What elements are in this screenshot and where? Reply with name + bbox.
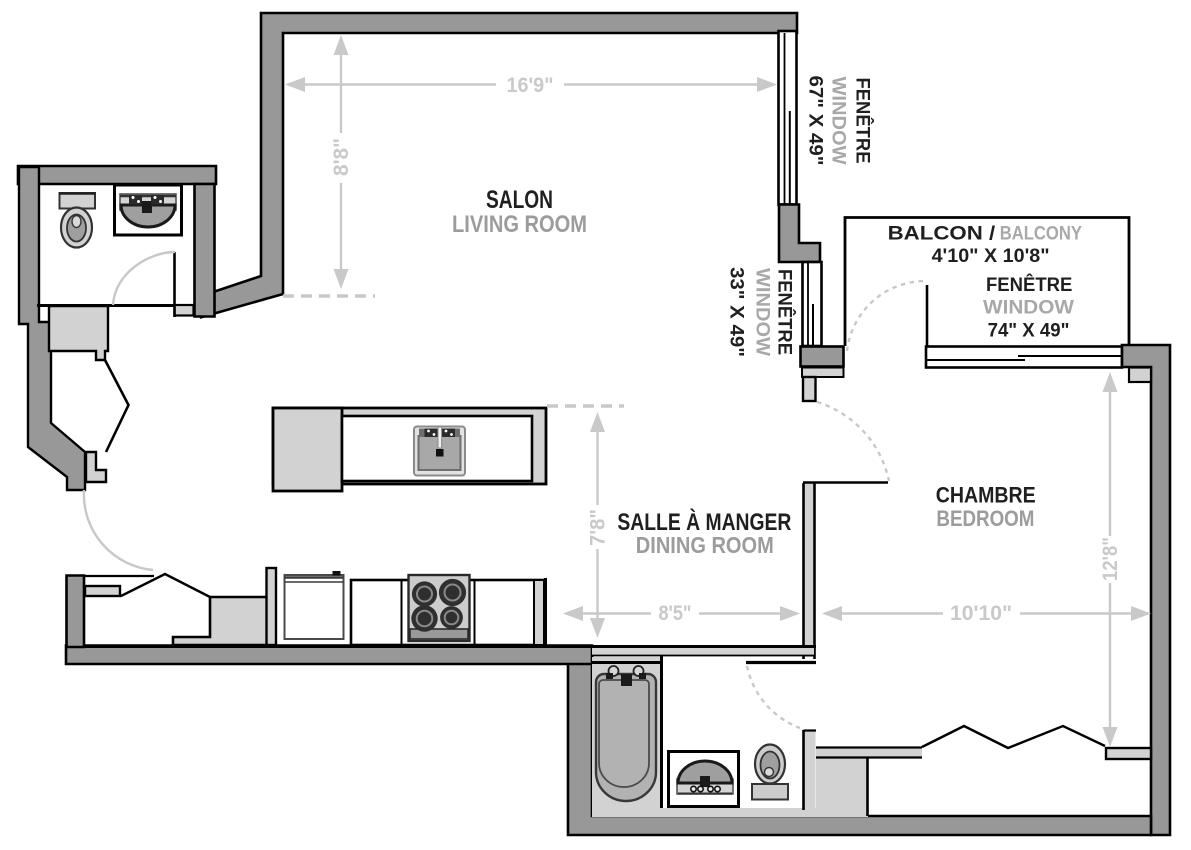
svg-text:10'10": 10'10": [950, 602, 1012, 625]
svg-text:BALCON /: BALCON /: [888, 223, 996, 244]
svg-text:FENÊTRE: FENÊTRE: [986, 274, 1072, 296]
svg-text:7'8": 7'8": [587, 509, 610, 546]
svg-text:33" X 49": 33" X 49": [726, 267, 747, 357]
svg-text:LIVING ROOM: LIVING ROOM: [452, 211, 587, 238]
svg-text:FENÊTRE: FENÊTRE: [774, 269, 796, 355]
svg-text:16'9": 16'9": [507, 74, 554, 97]
svg-text:4'10" X 10'8": 4'10" X 10'8": [932, 246, 1050, 267]
svg-text:FENÊTRE: FENÊTRE: [852, 78, 874, 164]
svg-text:WINDOW: WINDOW: [983, 298, 1074, 319]
svg-text:12'8": 12'8": [1099, 537, 1122, 581]
svg-text:WINDOW: WINDOW: [752, 268, 773, 356]
svg-text:WINDOW: WINDOW: [828, 77, 849, 165]
svg-text:CHAMBRE: CHAMBRE: [936, 483, 1036, 508]
svg-text:74" X 49": 74" X 49": [988, 320, 1070, 341]
svg-text:8'8": 8'8": [330, 138, 353, 176]
svg-text:67" X 49": 67" X 49": [805, 76, 826, 166]
svg-text:BEDROOM: BEDROOM: [936, 506, 1034, 531]
svg-text:DINING ROOM: DINING ROOM: [636, 532, 774, 558]
svg-text:SALON: SALON: [486, 186, 553, 214]
svg-text:BALCONY: BALCONY: [1000, 223, 1083, 244]
svg-text:8'5": 8'5": [659, 602, 692, 625]
